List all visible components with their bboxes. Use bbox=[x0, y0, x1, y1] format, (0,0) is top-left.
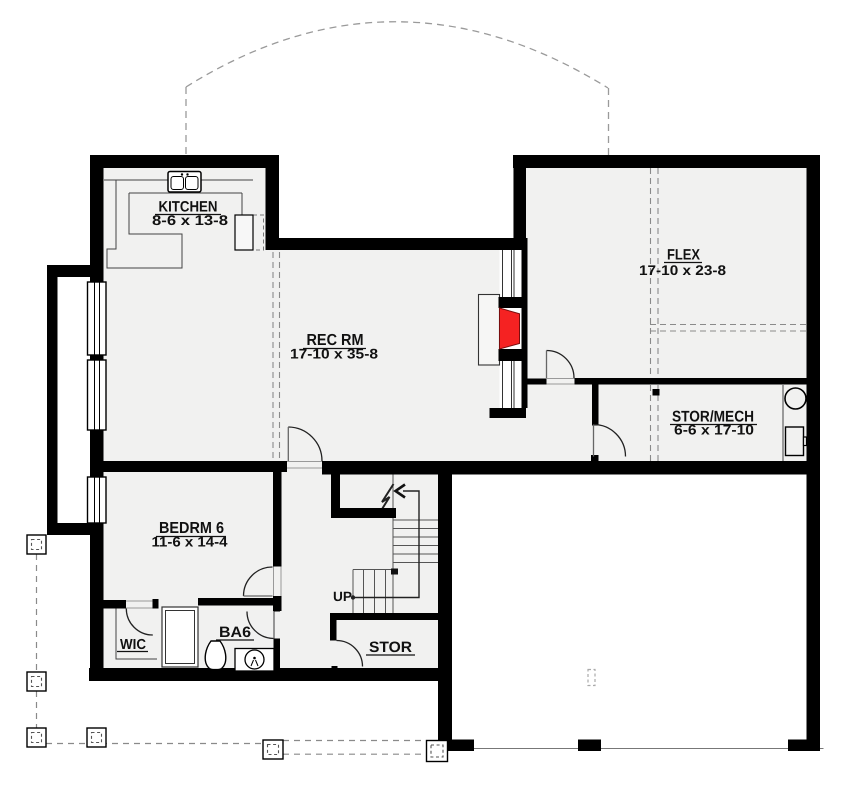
svg-text:FLEX: FLEX bbox=[667, 247, 700, 264]
svg-text:UP: UP bbox=[333, 589, 352, 604]
svg-text:17-10 x 35-8: 17-10 x 35-8 bbox=[290, 346, 378, 362]
svg-text:11-6 x 14-4: 11-6 x 14-4 bbox=[152, 534, 228, 550]
svg-text:6-6 x 17-10: 6-6 x 17-10 bbox=[674, 422, 754, 438]
svg-text:17-10 x 23-8: 17-10 x 23-8 bbox=[639, 262, 726, 278]
svg-text:8-6 x 13-8: 8-6 x 13-8 bbox=[152, 212, 228, 228]
svg-text:WIC: WIC bbox=[120, 637, 146, 653]
svg-text:BA6: BA6 bbox=[219, 624, 251, 641]
svg-text:STOR: STOR bbox=[369, 639, 412, 656]
